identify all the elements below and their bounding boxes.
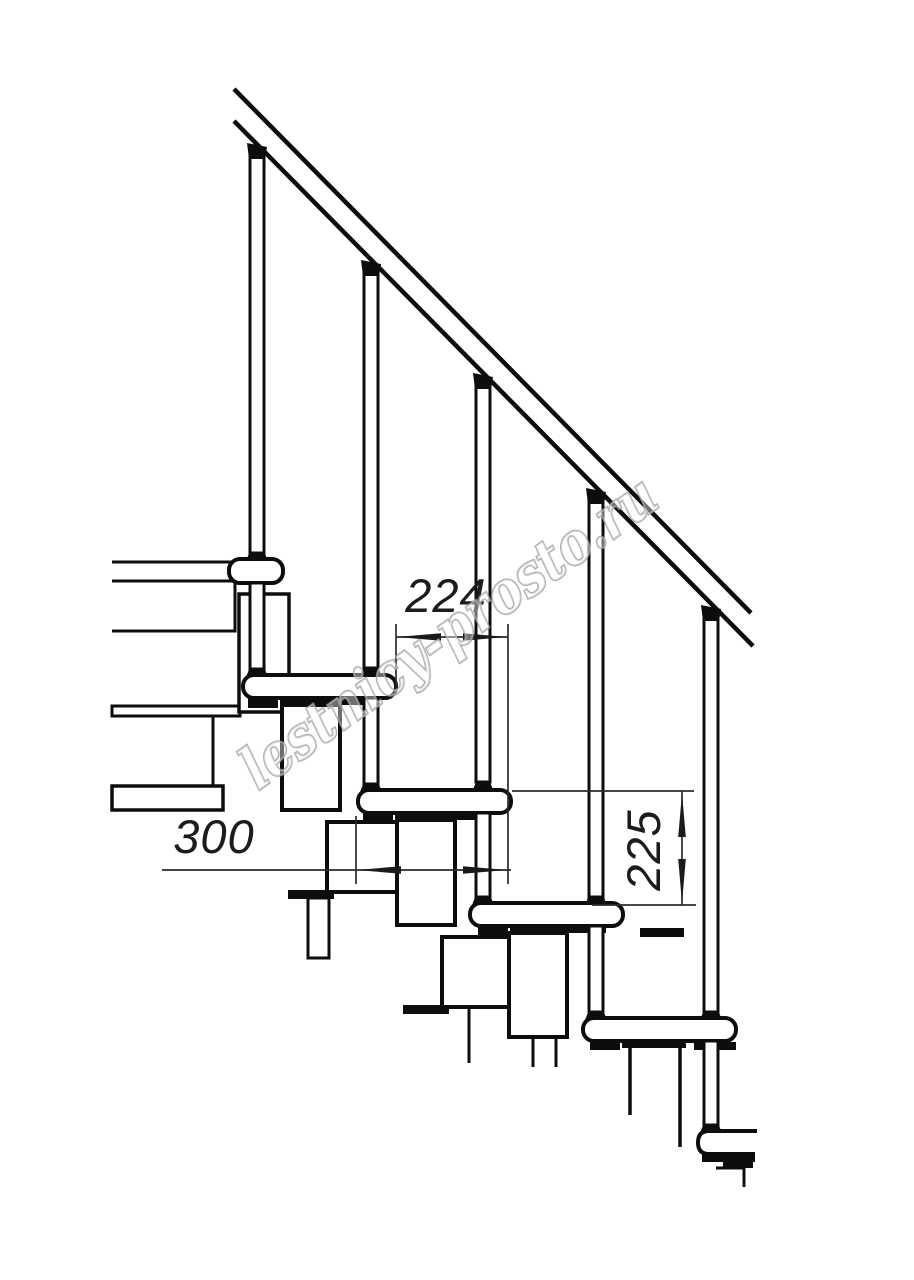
mount-plate [640,928,684,937]
baluster-1-lower [250,583,264,669]
handrail-top-line [234,89,751,613]
tread-3 [470,903,623,926]
module-tube [509,933,567,1037]
mount-plate [403,1005,449,1014]
upper-landing-band [112,786,223,810]
module-stub-line [716,1168,744,1187]
baluster-4-lower [589,926,603,1012]
arrowhead-down [678,859,686,903]
drawing-canvas: 224 300 225 lestnicy-prosto.ru [0,0,914,1280]
module-square [442,937,518,1007]
module-stub [308,898,329,958]
tread5-understructure [702,1152,755,1187]
upper-landing-band [112,706,240,716]
baluster-2 [364,274,378,668]
tread-5-partial [698,1131,757,1154]
upper-step-back-line [112,583,235,631]
baluster-5-lower [704,1041,718,1125]
staircase-technical-drawing: 224 300 225 lestnicy-prosto.ru [0,0,914,1280]
module-tube [397,820,455,925]
mount-plate [702,1152,755,1162]
tread-4 [583,1018,736,1041]
baluster-3-lower [476,813,490,897]
tread-2 [358,790,511,813]
baluster-1 [250,157,264,553]
module-square [327,822,403,892]
baluster-5 [704,619,718,1012]
dimension-label-300: 300 [173,810,254,863]
upper-tread-end [229,559,283,583]
arrowhead-up [678,793,686,837]
dimension-label-225: 225 [617,809,670,891]
